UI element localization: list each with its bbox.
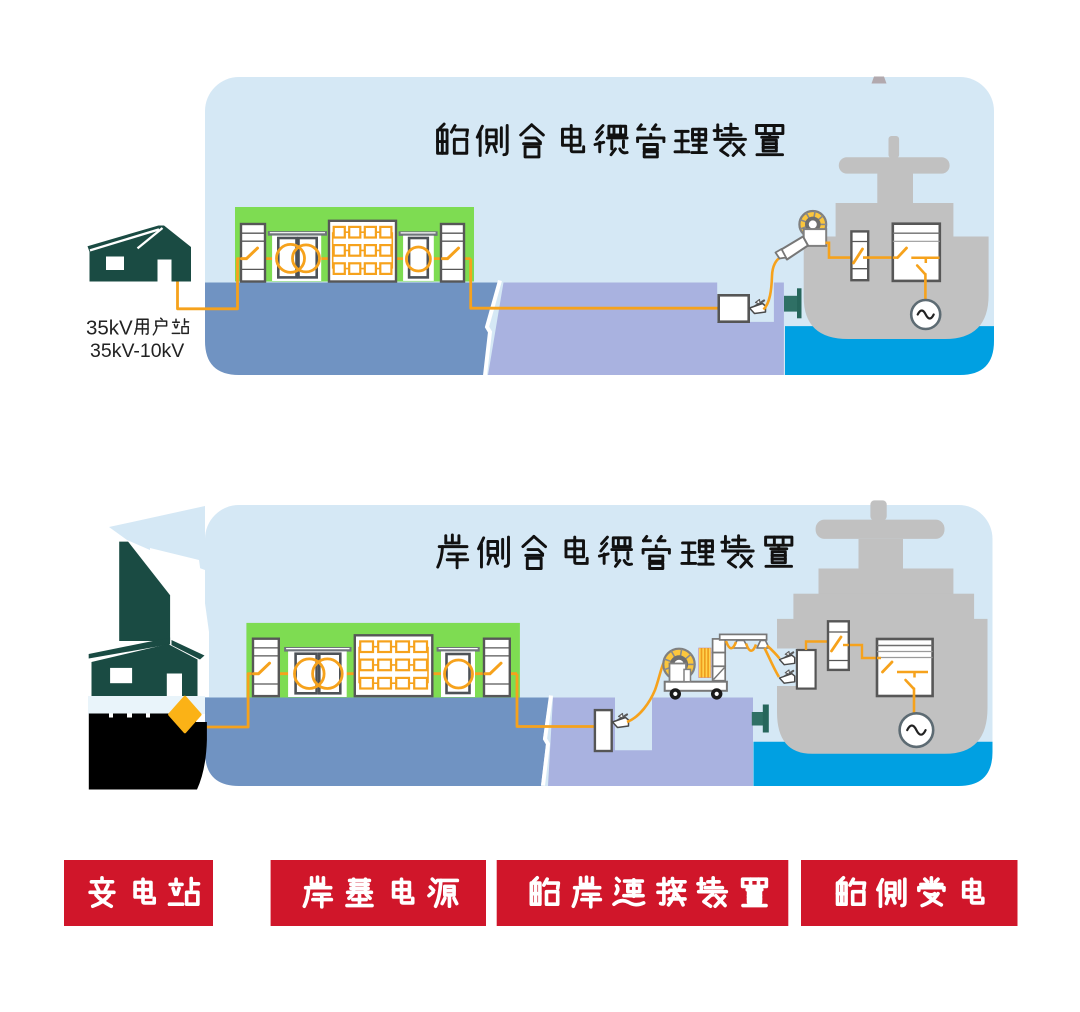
- svg-text:35kV-10kV: 35kV-10kV: [90, 340, 184, 362]
- svg-text:35kV: 35kV: [86, 317, 133, 340]
